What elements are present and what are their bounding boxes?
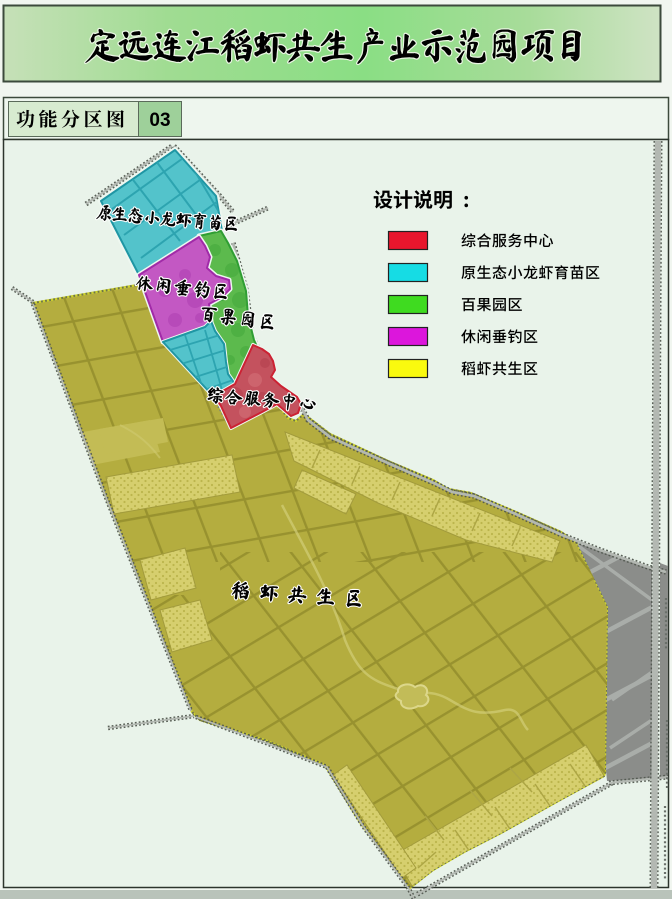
svg-text:03: 03 [149,110,170,131]
